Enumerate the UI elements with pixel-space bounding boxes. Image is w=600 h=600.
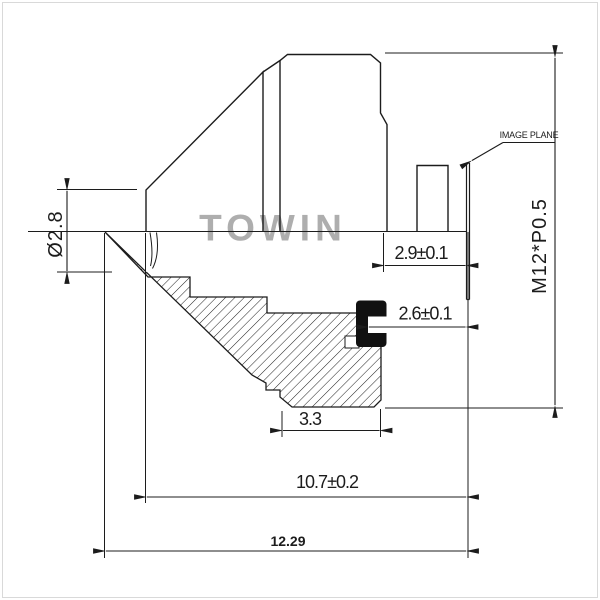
image-plane-label: IMAGE PLANE bbox=[500, 130, 559, 140]
watermark-text: TOWIN bbox=[199, 208, 347, 249]
barrel-outline bbox=[263, 55, 387, 232]
lens-technical-drawing: TOWIN bbox=[0, 0, 600, 600]
dimension-2-9: 2.9±0.1 bbox=[385, 243, 466, 266]
ir-filter-seal-notch bbox=[368, 317, 387, 334]
mount-to-image-label: 10.7±0.2 bbox=[296, 472, 359, 492]
lens-body-outline bbox=[146, 55, 448, 232]
clearance-2-9-label: 2.9±0.1 bbox=[395, 243, 449, 263]
front-diameter-label: Ø2.8 bbox=[45, 210, 67, 257]
image-plane-callout: IMAGE PLANE bbox=[472, 130, 559, 161]
image-plane-leader-arrow bbox=[472, 143, 503, 161]
total-length-label: 12.29 bbox=[270, 533, 305, 549]
rear-width-label: 3.3 bbox=[299, 409, 322, 429]
thread-spec-label: M12*P0.5 bbox=[529, 198, 551, 294]
section-cut bbox=[105, 232, 387, 407]
dimension-total-length: 12.29 bbox=[106, 533, 466, 551]
dimension-10-7: 10.7±0.2 bbox=[147, 472, 466, 497]
dimension-thread-spec: M12*P0.5 bbox=[529, 58, 555, 405]
dimension-3-3: 3.3 bbox=[283, 409, 380, 431]
lens-drawing-page: TOWIN bbox=[0, 0, 600, 600]
sensor-cover-glass bbox=[417, 166, 448, 232]
bfl-2-6-label: 2.6±0.1 bbox=[399, 304, 453, 324]
photo-frame-border bbox=[3, 3, 598, 598]
dimension-front-diameter: Ø2.8 bbox=[45, 191, 67, 271]
